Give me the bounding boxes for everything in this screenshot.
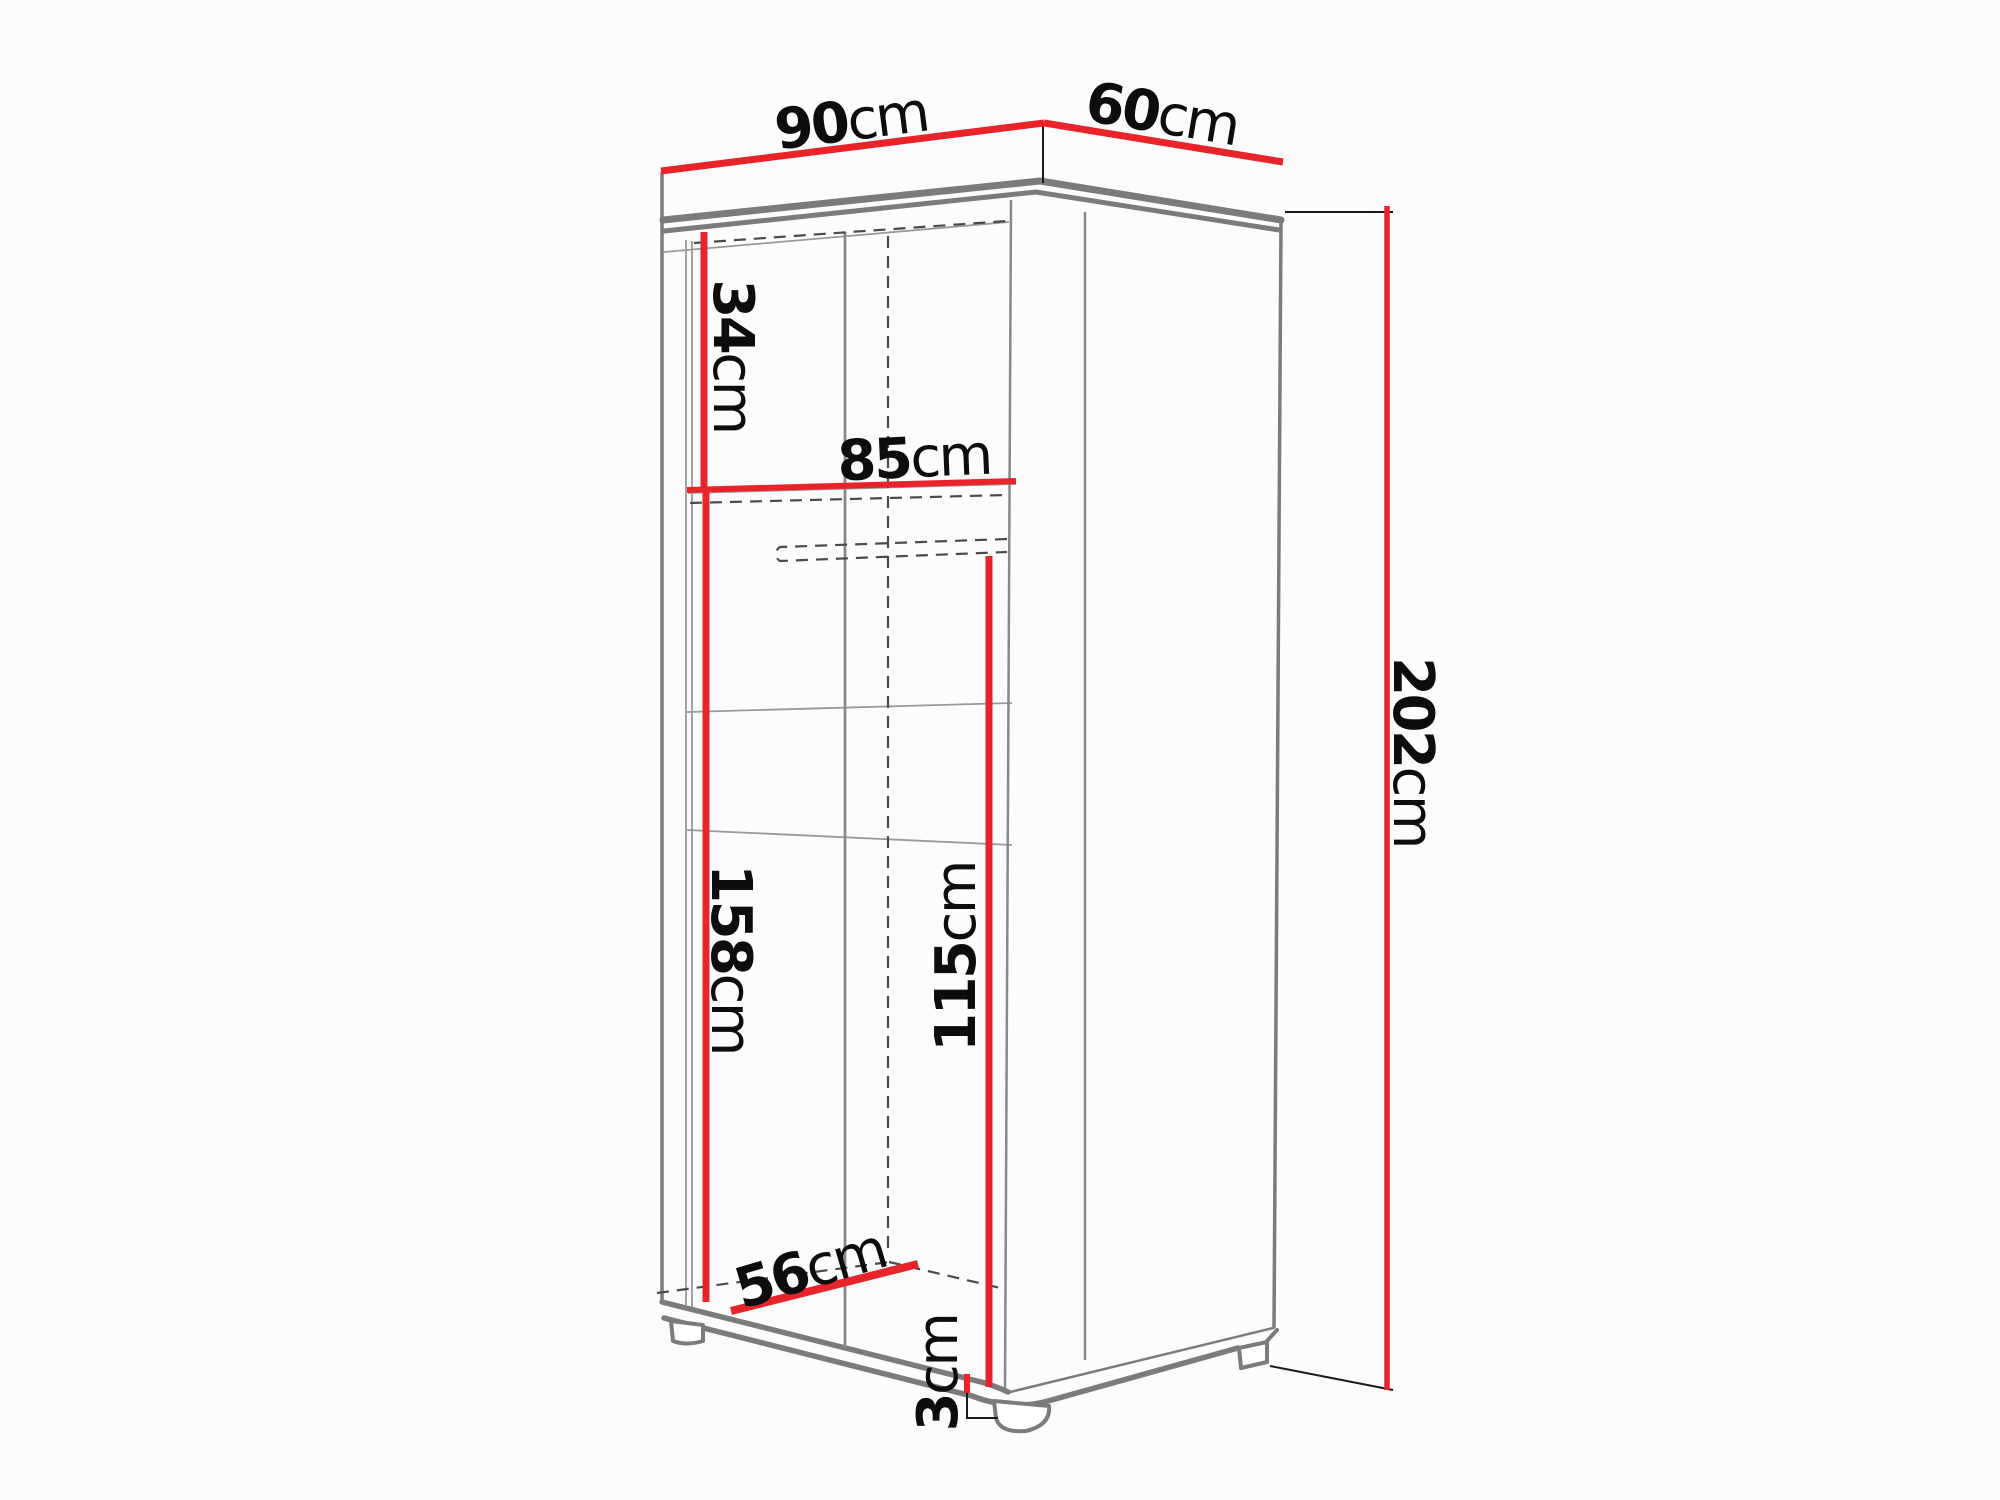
front-right-foot bbox=[994, 1401, 1049, 1431]
dim-label-interior-width: 85cm bbox=[836, 422, 992, 494]
diagram-background bbox=[0, 0, 2000, 1500]
hanging-height-value: 115 bbox=[924, 942, 989, 1051]
width-value: 90 bbox=[771, 89, 852, 163]
dim-label-leg-height: 3cm bbox=[906, 1315, 971, 1432]
svg-text:85cm: 85cm bbox=[836, 422, 992, 494]
depth-value: 60 bbox=[1081, 69, 1164, 145]
interior-height-unit: cm bbox=[699, 974, 764, 1054]
svg-text:3cm: 3cm bbox=[906, 1315, 971, 1432]
width-unit: cm bbox=[843, 79, 931, 154]
dim-label-hanging-height: 115cm bbox=[924, 862, 989, 1052]
front-left-foot bbox=[671, 1321, 703, 1344]
interior-width-value: 85 bbox=[836, 426, 912, 494]
dim-label-top-shelf-height: 34cm bbox=[701, 279, 766, 432]
leg-height-value: 3 bbox=[906, 1395, 971, 1431]
svg-text:202cm: 202cm bbox=[1381, 657, 1446, 847]
top-shelf-height-unit: cm bbox=[701, 352, 766, 432]
depth-unit: cm bbox=[1153, 81, 1243, 158]
svg-text:158cm: 158cm bbox=[699, 864, 764, 1054]
diagram-canvas: 90cm 60cm 202cm 34cm 85cm 158cm bbox=[0, 0, 2000, 1500]
svg-text:115cm: 115cm bbox=[924, 862, 989, 1052]
interior-height-value: 158 bbox=[699, 864, 764, 973]
height-value: 202 bbox=[1381, 657, 1446, 766]
dim-label-interior-height: 158cm bbox=[699, 864, 764, 1054]
top-shelf-height-value: 34 bbox=[701, 279, 766, 352]
side-rear-foot bbox=[1239, 1342, 1267, 1368]
wardrobe-dimension-diagram: 90cm 60cm 202cm 34cm 85cm 158cm bbox=[0, 0, 2000, 1500]
interior-width-unit: cm bbox=[909, 422, 992, 490]
hanging-height-unit: cm bbox=[924, 862, 989, 942]
svg-text:34cm: 34cm bbox=[701, 279, 766, 432]
height-unit: cm bbox=[1381, 767, 1446, 847]
leg-height-unit: cm bbox=[906, 1315, 971, 1395]
dim-label-height: 202cm bbox=[1381, 657, 1446, 847]
